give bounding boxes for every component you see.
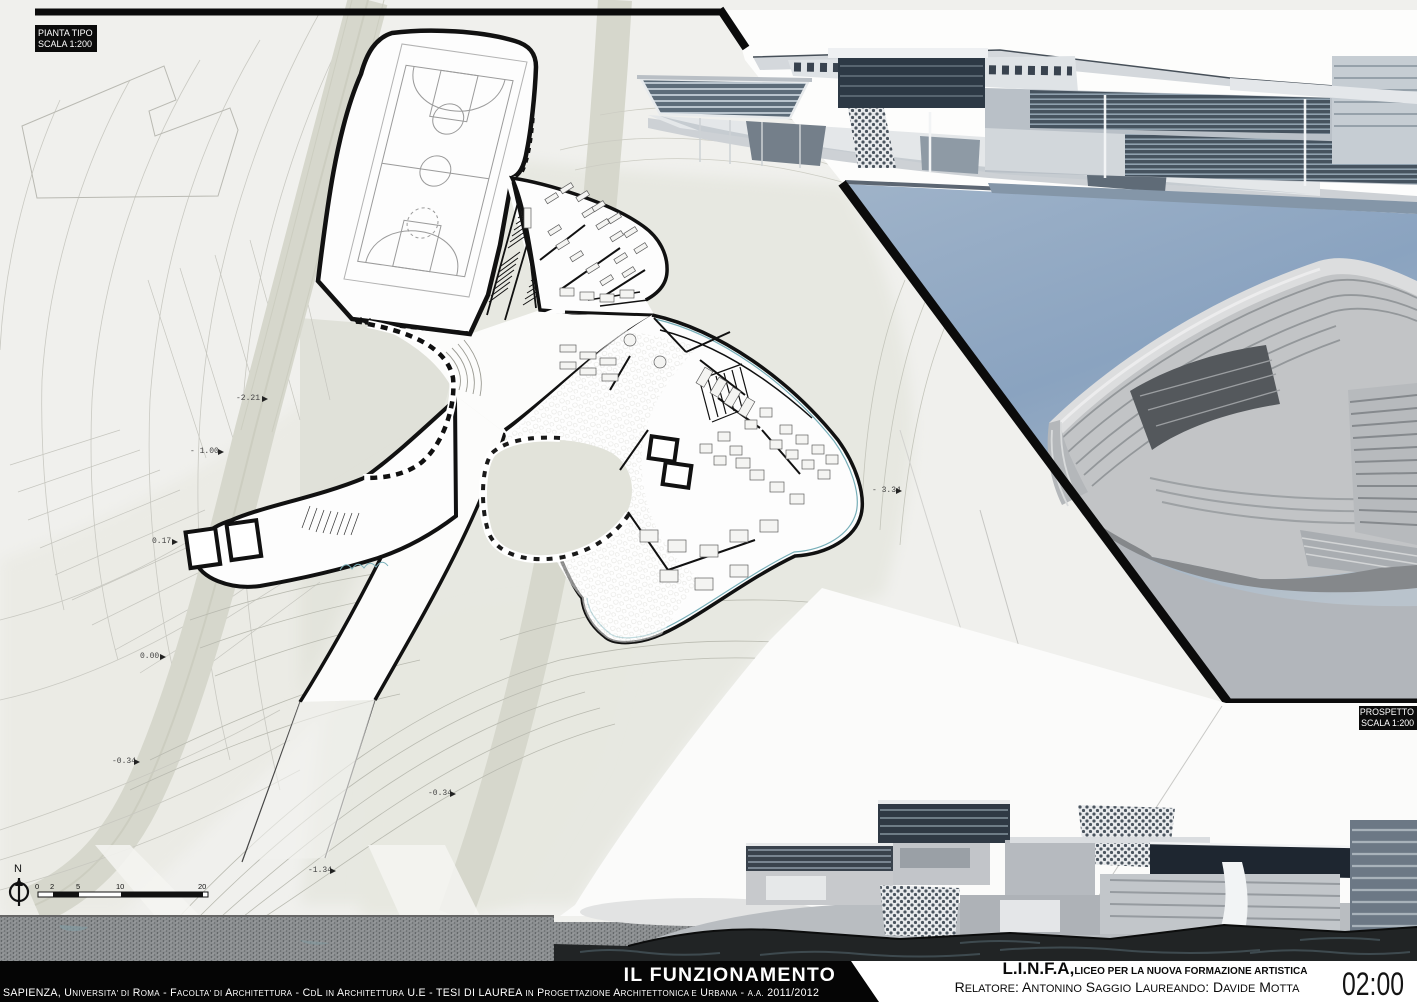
svg-text:SCALA 1:200: SCALA 1:200: [1361, 718, 1414, 728]
svg-text:2: 2: [50, 882, 54, 891]
svg-text:SAPIENZA, UNIVERSITA' DI ROMA: SAPIENZA, UNIVERSITA' DI ROMA - FACOLTA'…: [3, 987, 819, 999]
svg-text:02:00: 02:00: [1342, 966, 1404, 1002]
svg-text:0.17: 0.17: [152, 537, 171, 546]
svg-text:IL FUNZIONAMENTO: IL FUNZIONAMENTO: [624, 964, 836, 986]
svg-text:0: 0: [35, 882, 39, 891]
svg-text:10: 10: [116, 882, 124, 891]
svg-text:- 1.00: - 1.00: [190, 447, 219, 456]
svg-text:SCALA 1:200: SCALA 1:200: [38, 39, 92, 49]
svg-text:5: 5: [76, 882, 80, 891]
svg-text:20: 20: [198, 882, 206, 891]
svg-text:PIANTA TIPO: PIANTA TIPO: [38, 28, 93, 38]
svg-text:-0.34: -0.34: [112, 757, 136, 766]
svg-text:-2.21: -2.21: [236, 394, 260, 403]
svg-text:PROSPETTO: PROSPETTO: [1360, 707, 1414, 717]
svg-text:-1.34: -1.34: [308, 866, 332, 875]
svg-text:-0.34: -0.34: [428, 789, 452, 798]
svg-text:N: N: [14, 863, 22, 875]
svg-text:0.00: 0.00: [140, 652, 159, 661]
